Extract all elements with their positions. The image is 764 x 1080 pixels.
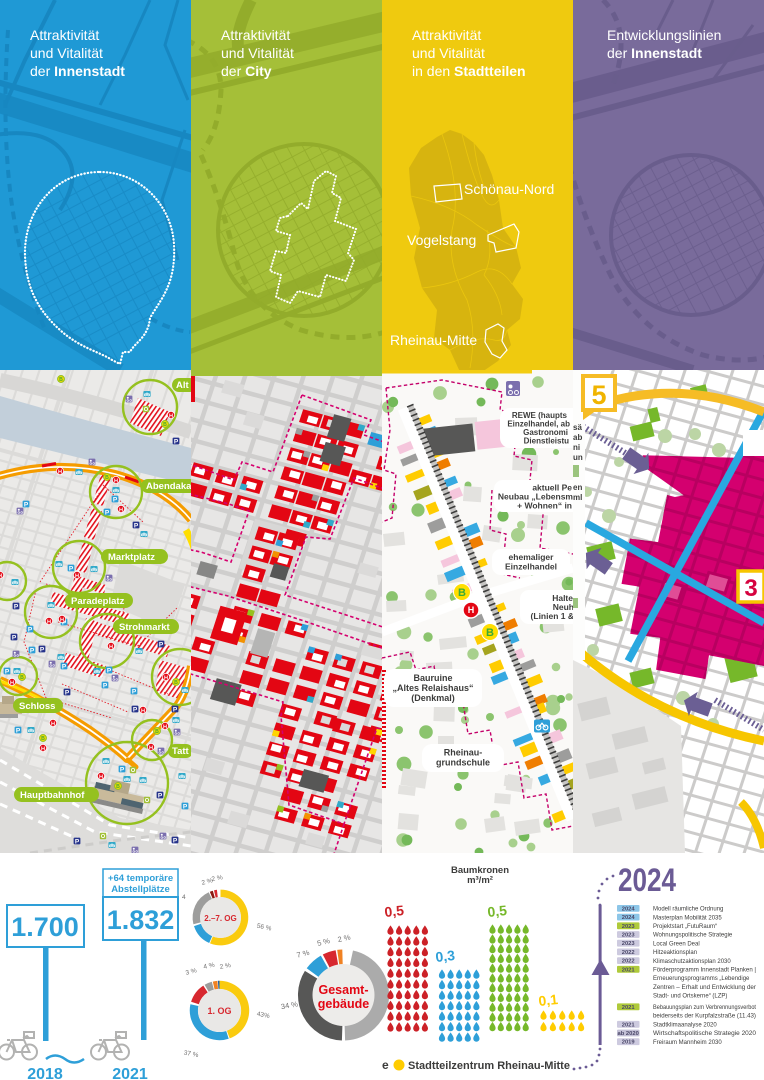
svg-text:Projektstart „FutuRaum“: Projektstart „FutuRaum“	[653, 924, 717, 930]
svg-text:0,3: 0,3	[435, 947, 456, 965]
svg-text:Förderprogramm Innenstadt Plan: Förderprogramm Innenstadt Planken |	[653, 968, 756, 974]
svg-text:1.832: 1.832	[107, 905, 175, 935]
svg-text:2.–7. OG: 2.–7. OG	[204, 914, 236, 923]
svg-text:34 %: 34 %	[280, 999, 299, 1011]
svg-text:2024: 2024	[618, 862, 676, 898]
svg-text:2024: 2024	[622, 906, 636, 912]
svg-text:Erneuerungsprogramms „Lebendig: Erneuerungsprogramms „Lebendige	[653, 976, 750, 982]
svg-text:5 %: 5 %	[316, 936, 331, 948]
svg-text:Stadt- und Ortskerne“ (LZP): Stadt- und Ortskerne“ (LZP)	[653, 994, 727, 1000]
svg-text:Marktplatz: Marktplatz	[108, 552, 155, 563]
svg-text:Abstellplätze: Abstellplätze	[111, 884, 170, 895]
svg-text:0,1: 0,1	[538, 991, 559, 1009]
svg-text:B: B	[486, 627, 494, 639]
svg-text:Alt: Alt	[176, 380, 190, 391]
svg-text:56 %: 56 %	[256, 923, 272, 933]
svg-text:2023: 2023	[622, 933, 636, 939]
svg-text:beiderseits der Kurpfalzstraße: beiderseits der Kurpfalzstraße (11.43)	[653, 1014, 756, 1020]
svg-text:ab 2020: ab 2020	[618, 1031, 639, 1037]
svg-text:3: 3	[744, 575, 757, 602]
svg-text:un: un	[573, 453, 583, 462]
svg-text:Gesamt-: Gesamt-	[318, 983, 368, 997]
svg-text:en: en	[573, 483, 582, 492]
svg-text:Dienstleistu: Dienstleistu	[524, 437, 569, 446]
svg-text:gebäude: gebäude	[318, 997, 369, 1011]
svg-text:2024: 2024	[622, 915, 636, 921]
svg-text:4 %: 4 %	[203, 962, 216, 971]
svg-text:Schloss: Schloss	[19, 701, 55, 712]
svg-text:2021: 2021	[622, 1005, 636, 1011]
svg-text:0,5: 0,5	[487, 902, 508, 920]
svg-text:Rheinau-: Rheinau-	[444, 748, 483, 758]
svg-text:1.700: 1.700	[11, 912, 79, 942]
svg-text:7 %: 7 %	[296, 948, 311, 960]
svg-text:2023: 2023	[622, 924, 636, 930]
svg-text:Stadtteilzentrum Rheinau-Mitte: Stadtteilzentrum Rheinau-Mitte	[408, 1060, 570, 1072]
svg-text:2021: 2021	[622, 1022, 636, 1028]
svg-text:Bauruine: Bauruine	[413, 673, 452, 683]
svg-text:Hitzeaktionsplan: Hitzeaktionsplan	[653, 950, 697, 956]
svg-text:43%: 43%	[256, 1011, 270, 1021]
svg-text:m³/m²: m³/m²	[467, 875, 493, 886]
svg-text:„Altes Relaishaus“: „Altes Relaishaus“	[392, 683, 473, 693]
svg-text:Wohnungspolitische Strategie: Wohnungspolitische Strategie	[653, 933, 733, 939]
svg-text:4: 4	[182, 894, 186, 901]
svg-text:3 %: 3 %	[185, 967, 198, 977]
svg-text:1. OG: 1. OG	[207, 1006, 231, 1016]
svg-text:Klimaschutzaktionsplan 2030: Klimaschutzaktionsplan 2030	[653, 959, 731, 965]
svg-text:(Linien 1 &: (Linien 1 &	[531, 611, 573, 621]
svg-text:Hauptbahnhof: Hauptbahnhof	[20, 790, 85, 801]
svg-text:ab: ab	[573, 433, 582, 442]
svg-text:ni: ni	[573, 443, 580, 452]
svg-text:Strohmarkt: Strohmarkt	[119, 622, 171, 633]
svg-text:H: H	[468, 605, 475, 615]
svg-text:sä: sä	[573, 423, 582, 432]
svg-text:Einzelhandel: Einzelhandel	[505, 562, 557, 572]
svg-text:Tatt: Tatt	[172, 746, 190, 757]
svg-text:2018: 2018	[27, 1066, 63, 1080]
svg-text:Wirtschaftspolitische Strategi: Wirtschaftspolitische Strategie 2020	[653, 1031, 757, 1037]
svg-text:Freiraum Mannheim 2030: Freiraum Mannheim 2030	[653, 1040, 722, 1046]
svg-text:Bebauungsplan zum Verbrennungs: Bebauungsplan zum Verbrennungsverbot	[653, 1005, 756, 1011]
svg-text:+64 temporäre: +64 temporäre	[108, 873, 173, 884]
svg-text:+ Wohnen“ in: + Wohnen“ in	[517, 501, 572, 511]
svg-text:2022: 2022	[622, 950, 635, 956]
svg-text:Modell räumliche Ordnung: Modell räumliche Ordnung	[653, 907, 723, 913]
svg-text:2019: 2019	[622, 1040, 636, 1046]
svg-text:Abendaka: Abendaka	[146, 481, 191, 492]
svg-text:Local Green Deal: Local Green Deal	[653, 941, 700, 947]
svg-text:2022: 2022	[622, 959, 635, 965]
svg-text:2 %: 2 %	[211, 874, 223, 883]
svg-text:Masterplan Mobilität 2035: Masterplan Mobilität 2035	[653, 915, 722, 921]
svg-text:2023: 2023	[622, 941, 636, 947]
svg-text:(Denkmal): (Denkmal)	[411, 693, 455, 703]
svg-text:grundschule: grundschule	[436, 758, 490, 768]
svg-text:2 %: 2 %	[219, 962, 231, 971]
svg-text:0,5: 0,5	[384, 902, 405, 920]
svg-text:Paradeplatz: Paradeplatz	[71, 596, 125, 607]
svg-text:Zentren – Erhalt und Entwicklu: Zentren – Erhalt und Entwicklung der	[653, 985, 756, 991]
svg-text:Stadtklimaanalyse 2020: Stadtklimaanalyse 2020	[653, 1023, 717, 1029]
svg-text:2 %: 2 %	[337, 932, 352, 944]
svg-text:e: e	[382, 1058, 389, 1072]
svg-text:5: 5	[591, 380, 606, 410]
svg-text:ehemaliger: ehemaliger	[509, 552, 555, 562]
svg-text:2021: 2021	[112, 1066, 148, 1080]
svg-text:37 %: 37 %	[183, 1050, 199, 1060]
svg-text:2021: 2021	[622, 967, 636, 973]
svg-text:B: B	[458, 587, 466, 599]
svg-text:ml: ml	[573, 493, 582, 502]
